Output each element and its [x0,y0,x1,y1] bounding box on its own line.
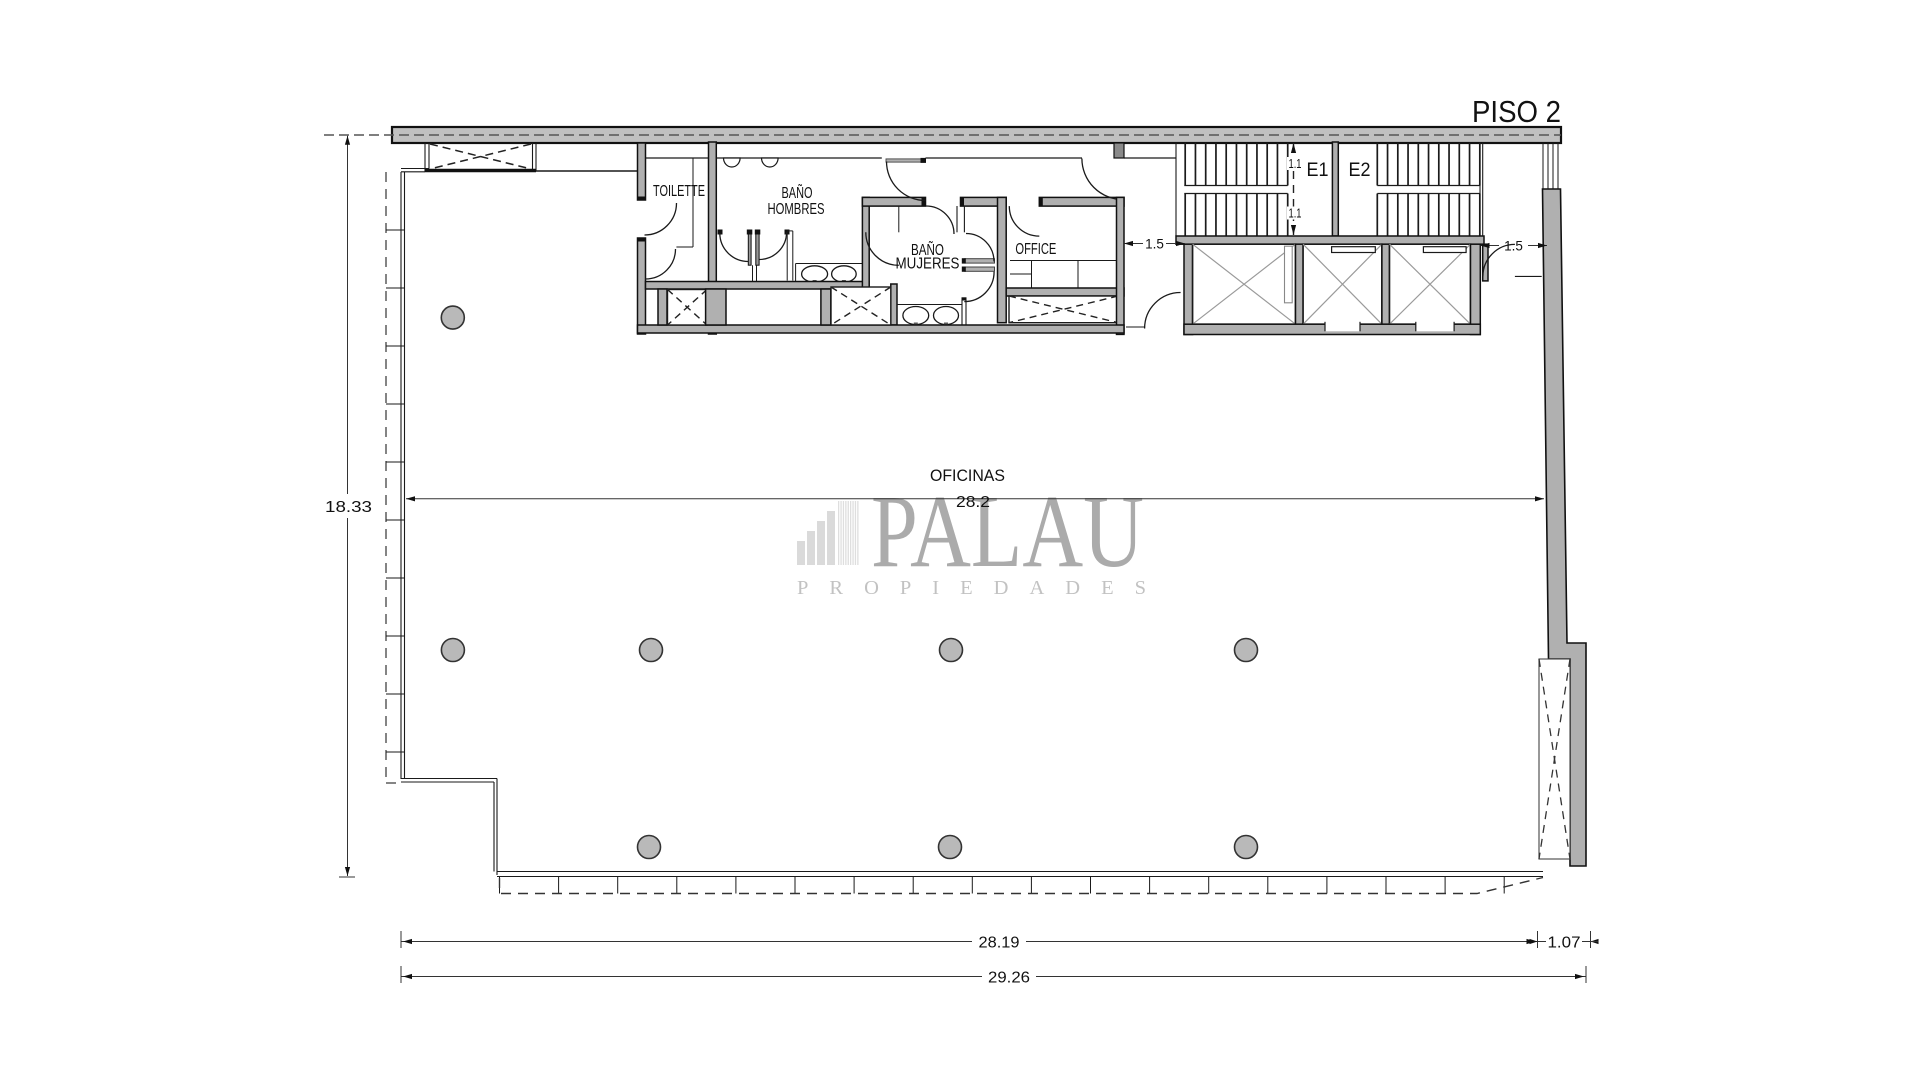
svg-text:PISO 2: PISO 2 [1472,94,1561,129]
svg-text:1.1: 1.1 [1289,157,1302,171]
svg-text:MUJERES: MUJERES [896,256,960,273]
svg-text:18.33: 18.33 [325,499,372,516]
svg-text:1.5: 1.5 [1145,237,1164,252]
svg-text:E2: E2 [1349,159,1371,181]
svg-text:BAÑO: BAÑO [782,185,813,202]
svg-text:TOILETTE: TOILETTE [653,183,705,200]
svg-text:E1: E1 [1307,159,1329,181]
svg-text:OFFICE: OFFICE [1015,241,1056,258]
svg-text:28.2: 28.2 [956,494,990,511]
svg-text:1.5: 1.5 [1504,239,1523,254]
svg-text:1.1: 1.1 [1289,207,1302,221]
svg-text:OFICINAS: OFICINAS [930,466,1005,485]
svg-text:29.26: 29.26 [988,970,1030,987]
svg-text:1.07: 1.07 [1548,935,1581,952]
svg-text:HOMBRES: HOMBRES [768,201,825,218]
svg-text:28.19: 28.19 [979,935,1020,952]
svg-text:PALAU: PALAU [871,474,1144,589]
